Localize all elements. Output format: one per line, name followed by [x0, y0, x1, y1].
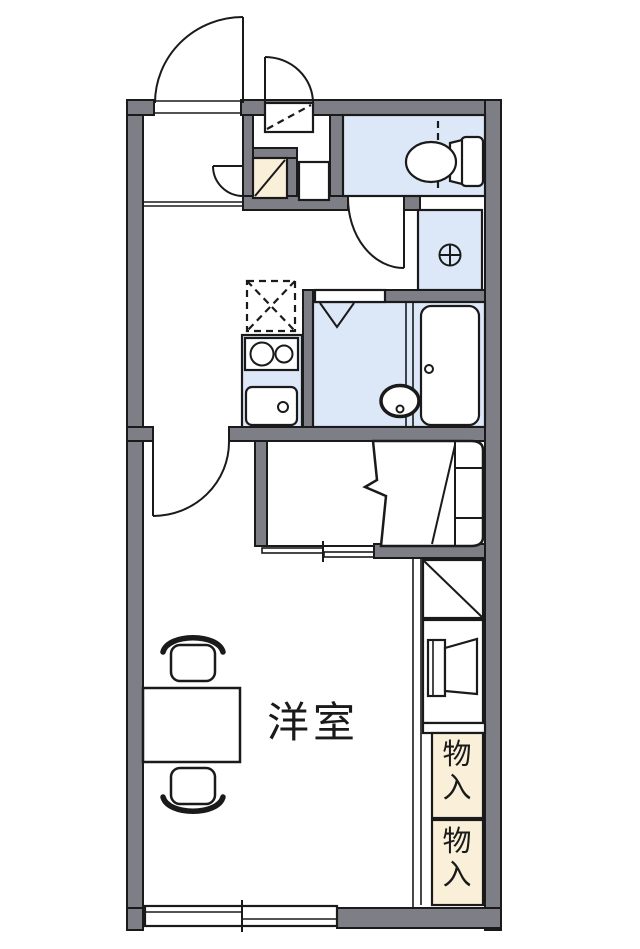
main-room-label: 洋室 — [267, 699, 359, 746]
wall-shoebox-top — [253, 148, 297, 158]
chair-bottom-seat — [171, 768, 215, 804]
wall-bottom — [337, 908, 501, 928]
refrigerator-space-x — [247, 281, 295, 331]
washing-machine-area — [418, 210, 482, 290]
wall-alcove-left — [255, 441, 267, 546]
wall-genkan-toilet — [330, 115, 343, 196]
table — [143, 688, 240, 762]
kitchen-sink — [246, 387, 297, 425]
bath-folding-door — [315, 290, 385, 302]
toilet-bowl — [406, 142, 456, 182]
wall-under-toilet — [404, 196, 420, 210]
tv-body — [445, 639, 477, 694]
closet-top-bar — [423, 723, 485, 733]
refrigerator-space — [247, 281, 295, 331]
closet-front-lines — [413, 558, 421, 908]
kitchen — [242, 281, 302, 428]
stove-unit — [245, 338, 298, 370]
entrance-doors — [155, 17, 313, 132]
wall-right — [485, 100, 501, 930]
wall-mid-left-stub — [127, 427, 153, 441]
bed — [365, 441, 483, 546]
wall-left — [127, 100, 143, 930]
toilet-door-arc — [348, 198, 404, 268]
wall-bath-left — [303, 290, 313, 428]
bottom-window — [145, 900, 337, 932]
tv-screen-bar — [428, 640, 445, 696]
wall-genkan-right — [243, 115, 253, 205]
bed-alcove — [255, 441, 485, 562]
hall-door-arc — [153, 442, 229, 516]
closet-column: 物入 物入 — [413, 558, 485, 908]
bathroom — [303, 290, 485, 428]
genkan-step-line — [143, 202, 243, 206]
wall-bottom-left-stub — [127, 908, 143, 930]
sub-door-arc — [265, 57, 313, 103]
entry-cabinet — [299, 162, 329, 200]
cabinet-door-arc — [213, 166, 243, 196]
floor-plan: 物入 物入 洋室 — [0, 0, 640, 949]
entrance-door-arc — [155, 17, 243, 103]
wall-bath-top — [385, 290, 485, 302]
main-room: 洋室 — [143, 638, 359, 812]
entrance-opening — [154, 101, 241, 113]
sliding-door-panel-left — [262, 548, 323, 553]
wall-top-left-stub — [127, 100, 154, 115]
chair-top-seat — [171, 645, 215, 681]
wall-mid — [229, 427, 485, 441]
floor-plan-drawing: 物入 物入 洋室 — [0, 0, 640, 949]
toilet-tank — [461, 137, 483, 186]
sliding-door-panel-right — [324, 552, 374, 557]
